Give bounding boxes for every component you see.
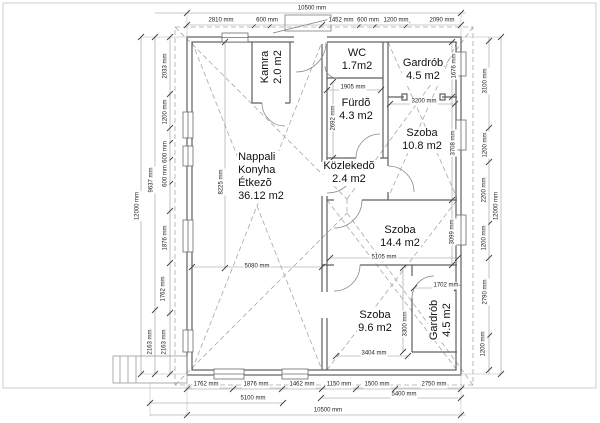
sheet-border	[3, 3, 596, 388]
floor-plan-drawing	[0, 0, 600, 423]
szoba-108-door-arc	[388, 166, 414, 192]
kozlekedo-door-arc	[327, 163, 357, 193]
entry-opening	[294, 35, 327, 44]
entry-porch	[273, 15, 338, 33]
terrace-steps	[113, 356, 187, 383]
walls	[187, 37, 461, 375]
furdo-door-arc	[356, 134, 380, 158]
floor-plan-sheet: Kamra2.0 m2WC1.7m2Gardrób4.5 m2Fürdõ4.3 …	[0, 0, 600, 423]
roof-projection-lines	[175, 27, 473, 385]
szoba-96-door-arc	[334, 265, 360, 291]
windows	[183, 33, 466, 379]
door-arcs	[262, 42, 434, 298]
extension-lines	[141, 13, 501, 416]
dimension-lines	[138, 10, 504, 418]
kamra-door-arc	[262, 103, 285, 126]
